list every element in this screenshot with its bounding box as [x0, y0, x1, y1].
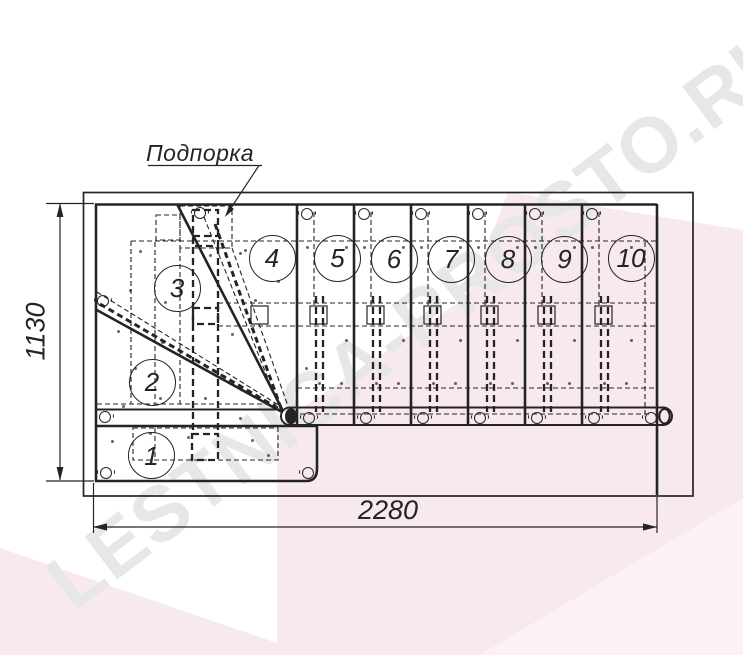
fastener-icon — [531, 412, 543, 424]
step-number-badge: 6 — [371, 236, 418, 283]
stair-plan-drawing — [0, 0, 743, 655]
screw-dot — [573, 339, 576, 342]
screw-dot — [251, 439, 254, 442]
screw-dot — [117, 330, 120, 333]
screw-dot — [231, 333, 234, 336]
fastener-icon — [303, 412, 315, 424]
screw-dot — [546, 382, 549, 385]
screw-dot — [603, 382, 606, 385]
screw-dot — [489, 382, 492, 385]
screw-dot — [375, 382, 378, 385]
screw-dot — [511, 382, 514, 385]
fastener-icon — [472, 208, 484, 220]
screw-dot — [161, 341, 164, 344]
screw-dot — [209, 254, 212, 257]
screw-dot — [345, 339, 348, 342]
screw-dot — [111, 440, 114, 443]
fastener-icon — [645, 412, 657, 424]
screw-dot — [363, 246, 366, 249]
screw-dot — [159, 397, 162, 400]
stringer-bracket — [367, 306, 384, 324]
screw-dot — [345, 246, 348, 249]
screw-dot — [239, 252, 242, 255]
screw-dot — [187, 436, 190, 439]
fastener-icon — [97, 295, 109, 307]
dim-arrow — [57, 467, 64, 481]
dimension-height-label: 1130 — [21, 290, 52, 374]
screw-dot — [402, 339, 405, 342]
screw-dot — [459, 246, 462, 249]
screw-dot — [516, 339, 519, 342]
screw-dot — [122, 405, 125, 408]
fastener-icon — [302, 467, 314, 479]
step-number-badge: 4 — [249, 235, 296, 282]
screw-dot — [534, 246, 537, 249]
fastener-icon — [301, 208, 313, 220]
fastener-icon — [194, 207, 206, 219]
screw-dot — [134, 367, 137, 370]
screw-dot — [305, 367, 308, 370]
screw-dot — [318, 382, 321, 385]
screw-dot — [459, 339, 462, 342]
screw-dot — [164, 301, 167, 304]
screw-dot — [402, 246, 405, 249]
fastener-icon — [99, 411, 111, 423]
screw-dot — [432, 382, 435, 385]
screw-dot — [454, 382, 457, 385]
leader-arrow — [225, 206, 234, 218]
screw-dot — [277, 280, 280, 283]
screw-dot — [204, 397, 207, 400]
screw-dot — [340, 382, 343, 385]
stringer-bracket — [595, 306, 612, 324]
support-label: Подпорка — [146, 140, 254, 167]
screw-dot — [149, 432, 152, 435]
winder-diagonals — [95, 204, 288, 412]
step-number-badge: 5 — [314, 235, 361, 282]
fastener-icon — [100, 467, 112, 479]
fastener-icon — [360, 412, 372, 424]
screw-dot — [477, 246, 480, 249]
screw-dot — [244, 249, 247, 252]
support-post — [156, 206, 232, 460]
step-number-badge: 7 — [428, 236, 475, 283]
fastener-icon — [474, 412, 486, 424]
fastener-icon — [415, 208, 427, 220]
drawing-canvas: LESTNICA-PROSTO.RU — [0, 0, 743, 655]
step-number-badge: 1 — [128, 432, 175, 479]
screw-dot — [591, 246, 594, 249]
step-number-badge: 10 — [608, 235, 655, 282]
step-number-badge: 9 — [541, 236, 588, 283]
screw-dot — [630, 339, 633, 342]
screw-dot — [516, 246, 519, 249]
dimension-width-label: 2280 — [346, 495, 430, 526]
screw-dot — [573, 246, 576, 249]
stringer-bracket — [481, 306, 498, 324]
screw-dot — [306, 246, 309, 249]
fastener-icon — [417, 412, 429, 424]
screw-dot — [267, 454, 270, 457]
stringer-bracket — [310, 306, 327, 324]
stringer-bracket — [538, 306, 555, 324]
screw-dot — [625, 382, 628, 385]
dim-arrow — [57, 203, 64, 217]
step-number-badge: 8 — [485, 236, 532, 283]
fastener-icon — [588, 412, 600, 424]
screw-dot — [630, 246, 633, 249]
fastener-icon — [529, 208, 541, 220]
dim-arrow — [643, 523, 657, 530]
fastener-icon — [358, 208, 370, 220]
screw-dot — [129, 289, 132, 292]
fastener-icon — [586, 208, 598, 220]
screw-dot — [397, 382, 400, 385]
dim-arrow — [93, 523, 107, 530]
screw-dot — [139, 250, 142, 253]
screw-dot — [568, 382, 571, 385]
step-number-badge: 2 — [129, 359, 176, 406]
stringer-bracket — [424, 306, 441, 324]
step-number-badge: 3 — [154, 265, 201, 312]
screw-dot — [420, 246, 423, 249]
screw-dot — [239, 417, 242, 420]
screw-dot — [254, 299, 257, 302]
